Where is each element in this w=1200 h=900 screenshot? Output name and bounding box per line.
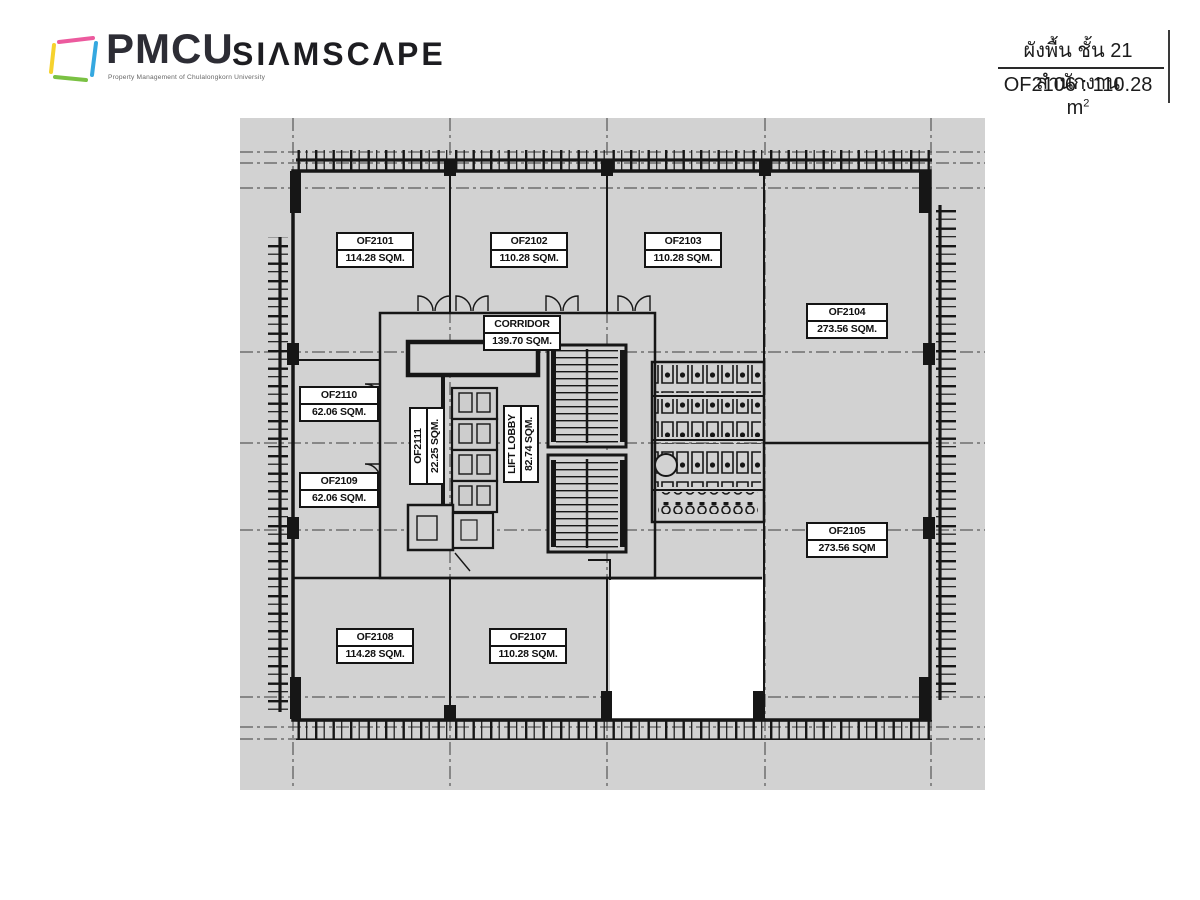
room-area: 110.28 SQM. bbox=[492, 251, 566, 266]
room-label-of2103: OF2103 110.28 SQM. bbox=[644, 232, 722, 268]
room-area: 273.56 SQM bbox=[808, 541, 886, 556]
room-name: OF2105 bbox=[808, 524, 886, 541]
room-label-of2107: OF2107 110.28 SQM. bbox=[489, 628, 567, 664]
room-name: OF2110 bbox=[301, 388, 377, 405]
window-band-bottom bbox=[296, 720, 932, 740]
room-area: 22.25 SQM. bbox=[428, 409, 443, 483]
floorplan-drawing bbox=[0, 0, 1200, 900]
room-name: OF2101 bbox=[338, 234, 412, 251]
room-name: OF2108 bbox=[338, 630, 412, 647]
room-label-of2101: OF2101 114.28 SQM. bbox=[336, 232, 414, 268]
room-area: 114.28 SQM. bbox=[338, 647, 412, 662]
room-label-of2104: OF2104 273.56 SQM. bbox=[806, 303, 888, 339]
room-name: LIFT LOBBY bbox=[505, 407, 522, 481]
room-area: 62.06 SQM. bbox=[301, 491, 377, 506]
room-name: OF2104 bbox=[808, 305, 886, 322]
room-label-of2111: OF2111 22.25 SQM. bbox=[409, 407, 445, 485]
room-name: OF2111 bbox=[411, 409, 428, 483]
window-band-right bbox=[936, 205, 956, 700]
room-area: 139.70 SQM. bbox=[485, 334, 559, 349]
room-label-lift-lobby: LIFT LOBBY 82.74 SQM. bbox=[503, 405, 539, 483]
page: PMCU Property Management of Chulalongkor… bbox=[0, 0, 1200, 900]
room-name: CORRIDOR bbox=[485, 317, 559, 334]
room-area: 110.28 SQM. bbox=[491, 647, 565, 662]
stairs-lower bbox=[548, 455, 626, 552]
room-name: OF2109 bbox=[301, 474, 377, 491]
elevator-bank bbox=[452, 388, 497, 512]
window-band-top bbox=[296, 150, 932, 170]
accessible-wc bbox=[655, 454, 677, 476]
room-area: 273.56 SQM. bbox=[808, 322, 886, 337]
room-label-of2109: OF2109 62.06 SQM. bbox=[299, 472, 379, 508]
room-name: OF2103 bbox=[646, 234, 720, 251]
room-area: 62.06 SQM. bbox=[301, 405, 377, 420]
room-label-of2108: OF2108 114.28 SQM. bbox=[336, 628, 414, 664]
highlighted-unit-of2106 bbox=[610, 580, 763, 719]
room-name: OF2102 bbox=[492, 234, 566, 251]
room-label-of2105: OF2105 273.56 SQM bbox=[806, 522, 888, 558]
room-area: 114.28 SQM. bbox=[338, 251, 412, 266]
room-name: OF2107 bbox=[491, 630, 565, 647]
stairs-upper bbox=[548, 345, 626, 447]
window-band-left bbox=[268, 237, 288, 712]
room-label-of2102: OF2102 110.28 SQM. bbox=[490, 232, 568, 268]
room-label-of2110: OF2110 62.06 SQM. bbox=[299, 386, 379, 422]
room-label-corridor: CORRIDOR 139.70 SQM. bbox=[483, 315, 561, 351]
room-area: 82.74 SQM. bbox=[522, 407, 537, 481]
room-area: 110.28 SQM. bbox=[646, 251, 720, 266]
